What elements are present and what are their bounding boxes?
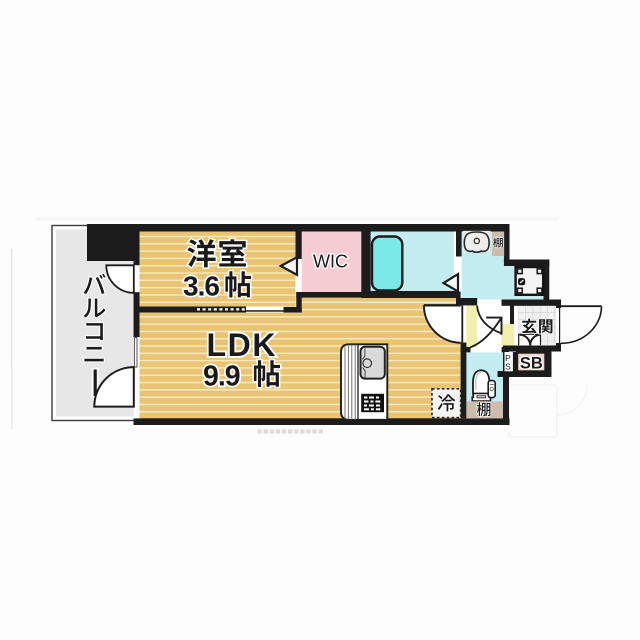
svg-text:S: S — [505, 362, 511, 372]
svg-text:WIC: WIC — [313, 252, 348, 272]
svg-text:SB: SB — [520, 354, 543, 372]
svg-text:LDK: LDK — [207, 327, 278, 363]
svg-text:3.6: 3.6 — [183, 271, 219, 302]
svg-text:9.9: 9.9 — [203, 361, 240, 393]
